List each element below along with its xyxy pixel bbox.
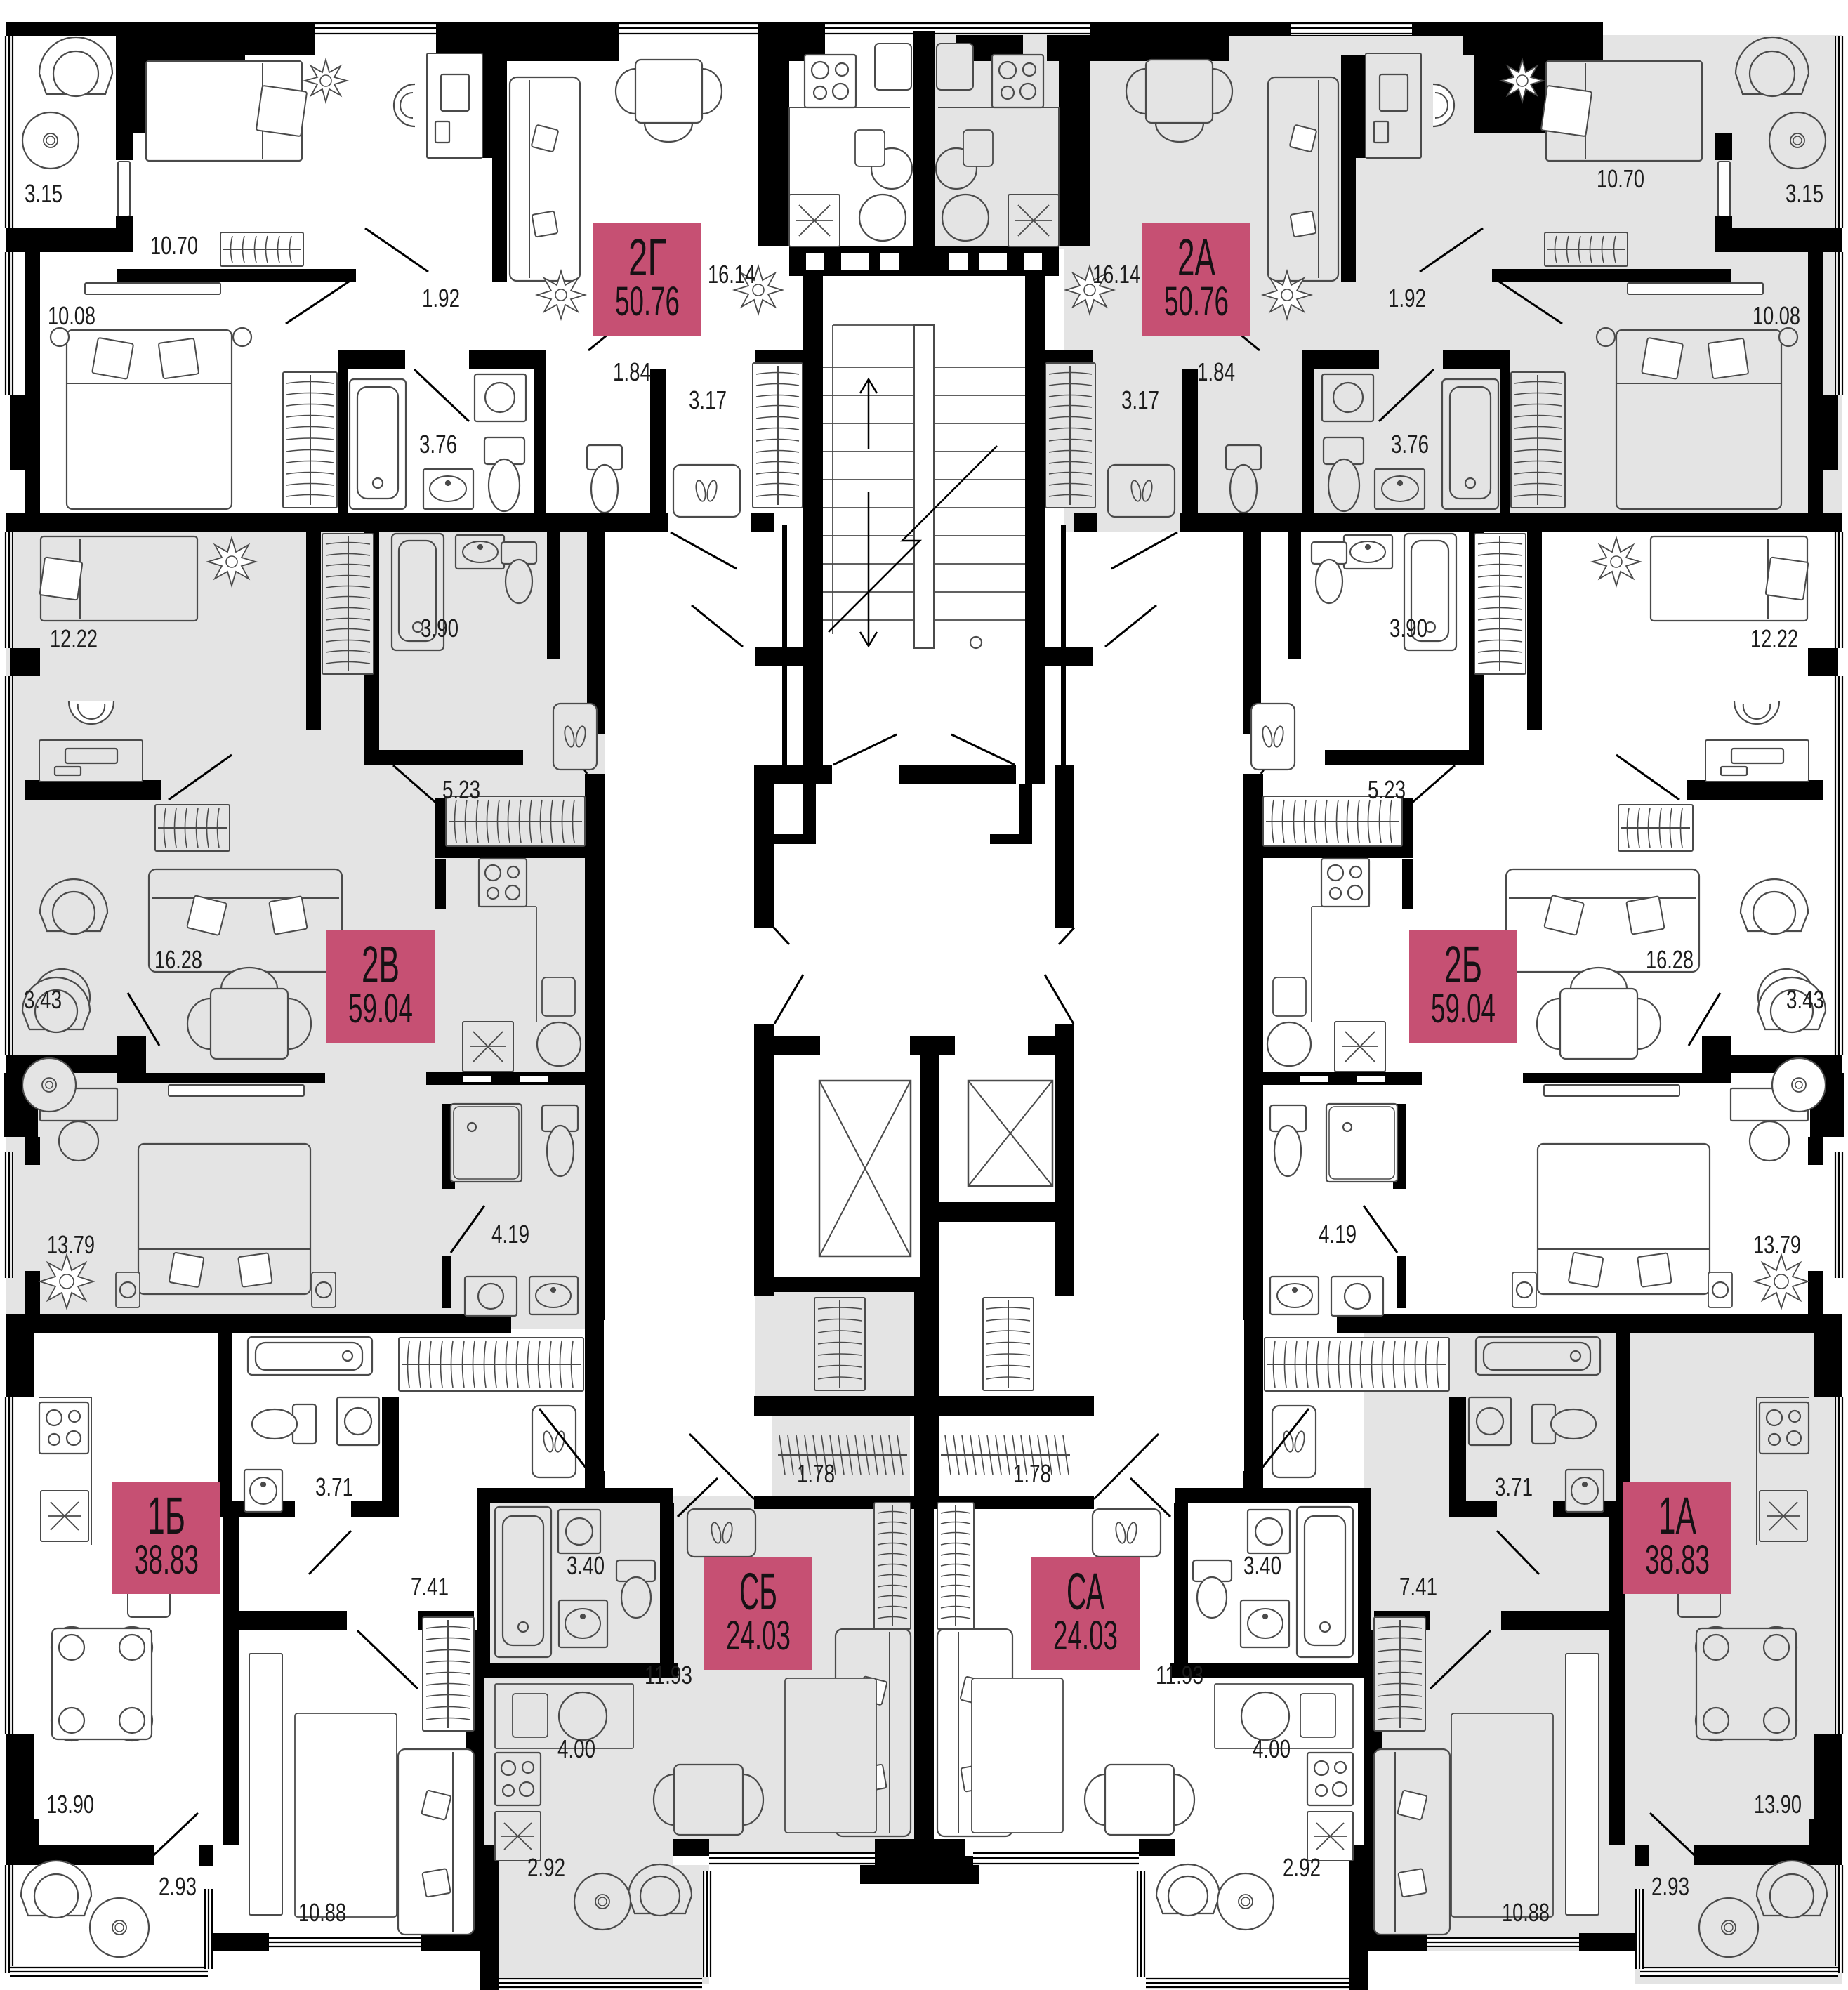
- svg-text:3.43: 3.43: [24, 985, 62, 1014]
- svg-text:3.90: 3.90: [421, 614, 458, 643]
- svg-text:2Б: 2Б: [1444, 935, 1482, 994]
- svg-text:1.78: 1.78: [1013, 1459, 1051, 1488]
- svg-text:16.28: 16.28: [1646, 945, 1694, 974]
- svg-text:59.04: 59.04: [1431, 986, 1496, 1032]
- svg-text:38.83: 38.83: [134, 1537, 199, 1583]
- svg-text:13.90: 13.90: [46, 1790, 94, 1819]
- svg-text:13.90: 13.90: [1754, 1790, 1802, 1819]
- svg-text:4.19: 4.19: [1319, 1220, 1357, 1248]
- svg-text:СА: СА: [1067, 1562, 1104, 1621]
- svg-text:24.03: 24.03: [1053, 1613, 1118, 1659]
- svg-text:5.23: 5.23: [442, 775, 480, 804]
- svg-text:11.93: 11.93: [1156, 1661, 1203, 1689]
- svg-text:1.78: 1.78: [797, 1459, 835, 1488]
- svg-text:4.00: 4.00: [557, 1734, 595, 1763]
- svg-text:10.08: 10.08: [48, 301, 95, 330]
- svg-text:2.92: 2.92: [1283, 1853, 1321, 1882]
- svg-text:3.90: 3.90: [1390, 614, 1427, 643]
- svg-text:2.93: 2.93: [159, 1872, 197, 1901]
- svg-text:3.17: 3.17: [689, 386, 727, 414]
- svg-text:2В: 2В: [362, 935, 400, 994]
- svg-text:38.83: 38.83: [1645, 1537, 1710, 1583]
- svg-text:1.92: 1.92: [1388, 284, 1426, 312]
- svg-text:50.76: 50.76: [615, 279, 680, 324]
- svg-text:1.84: 1.84: [1197, 357, 1235, 386]
- svg-text:2.93: 2.93: [1651, 1872, 1689, 1901]
- svg-text:12.22: 12.22: [50, 624, 98, 653]
- svg-text:3.76: 3.76: [419, 430, 457, 459]
- svg-text:2.92: 2.92: [527, 1853, 565, 1882]
- svg-text:2А: 2А: [1177, 228, 1215, 286]
- svg-text:10.08: 10.08: [1753, 301, 1800, 330]
- svg-text:1.92: 1.92: [422, 284, 460, 312]
- svg-text:16.14: 16.14: [708, 260, 755, 289]
- svg-text:11.93: 11.93: [645, 1661, 692, 1689]
- svg-text:3.15: 3.15: [1786, 179, 1823, 208]
- svg-text:1Б: 1Б: [147, 1487, 185, 1545]
- svg-text:10.88: 10.88: [298, 1898, 346, 1927]
- svg-text:10.70: 10.70: [1597, 164, 1644, 193]
- svg-text:13.79: 13.79: [47, 1230, 95, 1259]
- svg-text:1А: 1А: [1658, 1487, 1696, 1545]
- svg-text:4.00: 4.00: [1253, 1734, 1291, 1763]
- svg-text:50.76: 50.76: [1164, 279, 1229, 324]
- svg-text:10.70: 10.70: [150, 231, 198, 260]
- svg-text:5.23: 5.23: [1368, 775, 1406, 804]
- svg-text:10.88: 10.88: [1502, 1898, 1550, 1927]
- svg-text:12.22: 12.22: [1750, 624, 1798, 653]
- svg-text:59.04: 59.04: [348, 986, 413, 1032]
- svg-text:3.71: 3.71: [1495, 1472, 1533, 1501]
- svg-text:1.84: 1.84: [613, 357, 651, 386]
- svg-text:3.71: 3.71: [315, 1472, 353, 1501]
- svg-text:16.14: 16.14: [1093, 260, 1140, 289]
- svg-text:3.15: 3.15: [25, 179, 62, 208]
- svg-text:4.19: 4.19: [491, 1220, 529, 1248]
- svg-text:СБ: СБ: [739, 1562, 777, 1621]
- svg-text:2Г: 2Г: [628, 228, 666, 286]
- svg-text:3.40: 3.40: [1243, 1551, 1281, 1580]
- svg-text:16.28: 16.28: [154, 945, 202, 974]
- svg-text:3.40: 3.40: [567, 1551, 605, 1580]
- svg-text:13.79: 13.79: [1753, 1230, 1801, 1259]
- svg-text:7.41: 7.41: [1399, 1572, 1437, 1601]
- svg-text:24.03: 24.03: [726, 1613, 791, 1659]
- svg-text:3.17: 3.17: [1121, 386, 1159, 414]
- svg-text:3.43: 3.43: [1786, 985, 1824, 1014]
- svg-text:3.76: 3.76: [1391, 430, 1429, 459]
- svg-text:7.41: 7.41: [411, 1572, 449, 1601]
